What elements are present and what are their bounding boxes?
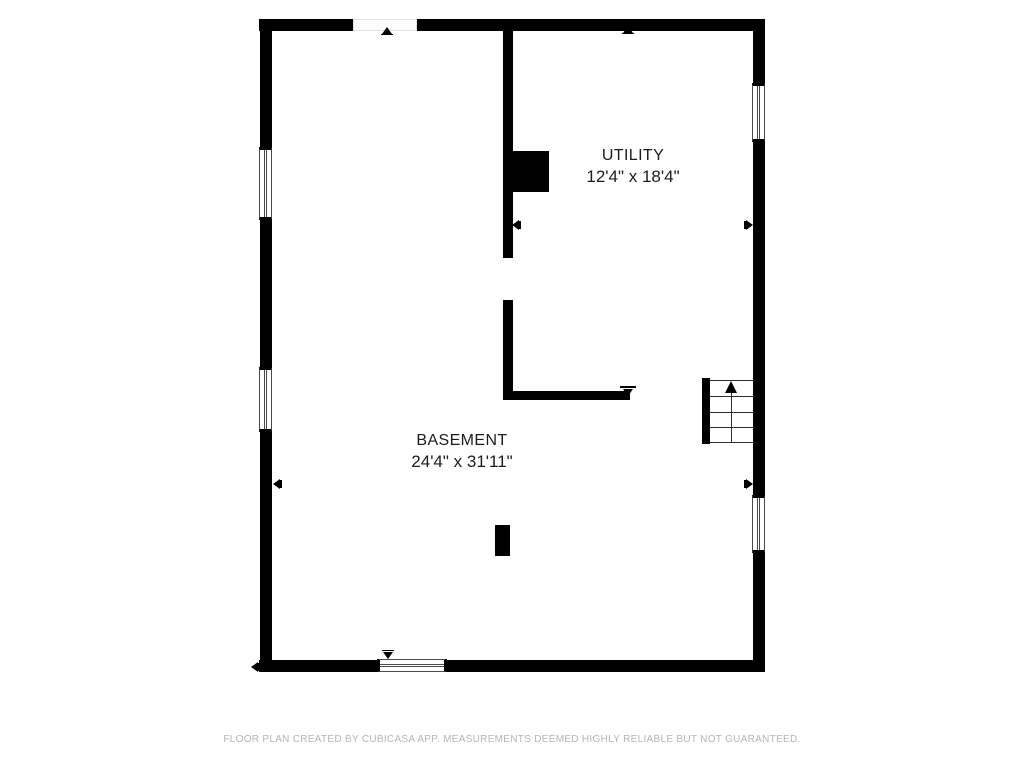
opening-marker-icon (251, 662, 258, 672)
window-pane-line (759, 86, 760, 139)
opening-marker-icon (623, 389, 633, 396)
room-dimensions: 24'4" x 31'11" (382, 451, 542, 473)
exterior-wall-top-right (417, 19, 765, 31)
window-pane-line (757, 86, 758, 139)
window-pane-line (757, 498, 758, 550)
window-pane-line (759, 498, 760, 550)
support-column (495, 525, 510, 556)
window-pane-line (380, 666, 444, 667)
opening-marker-icon (746, 479, 753, 489)
stair-stringer (702, 378, 710, 444)
floor-plan: UTILITY 12'4" x 18'4" BASEMENT 24'4" x 3… (0, 0, 1024, 768)
opening-marker-tick (622, 33, 634, 34)
room-name: BASEMENT (382, 431, 542, 451)
window-bottom (377, 659, 447, 672)
opening-marker-tick (258, 663, 260, 671)
window-pane-line (264, 370, 265, 429)
opening-marker-icon (273, 479, 280, 489)
window-pane-line (266, 150, 267, 217)
window-pane-line (264, 150, 265, 217)
opening-marker-icon (383, 652, 393, 659)
room-label-basement: BASEMENT 24'4" x 31'11" (382, 431, 542, 473)
stair-direction-line (731, 393, 732, 443)
opening-marker-tick (382, 650, 394, 651)
opening-marker-tick (280, 480, 282, 488)
opening-marker-icon (512, 220, 519, 230)
interior-wall-lower (503, 300, 513, 400)
window-right-lower (752, 495, 765, 553)
window-pane-line (380, 664, 444, 665)
chimney-block (503, 151, 549, 192)
opening-marker-tick (620, 386, 636, 388)
stair-up-arrow-icon (725, 381, 737, 393)
window-left-lower (259, 367, 272, 432)
exterior-wall-left (260, 19, 272, 672)
room-label-utility: UTILITY 12'4" x 18'4" (553, 146, 713, 188)
window-right-upper (752, 83, 765, 142)
window-left-upper (259, 147, 272, 220)
opening-marker-tick (519, 221, 521, 229)
footer-disclaimer: FLOOR PLAN CREATED BY CUBICASA APP. MEAS… (0, 734, 1024, 745)
opening-marker-tick (744, 221, 746, 229)
opening-marker-icon (623, 26, 633, 33)
exterior-wall-bottom (259, 660, 765, 672)
opening-marker-tick (744, 480, 746, 488)
opening-marker-icon (382, 27, 392, 34)
staircase (702, 378, 753, 444)
window-pane-line (266, 370, 267, 429)
exterior-wall-top-left (259, 19, 353, 31)
room-dimensions: 12'4" x 18'4" (553, 166, 713, 188)
opening-marker-tick (381, 34, 393, 35)
room-name: UTILITY (553, 146, 713, 166)
opening-marker-icon (746, 220, 753, 230)
interior-wall-horizontal (503, 391, 630, 400)
